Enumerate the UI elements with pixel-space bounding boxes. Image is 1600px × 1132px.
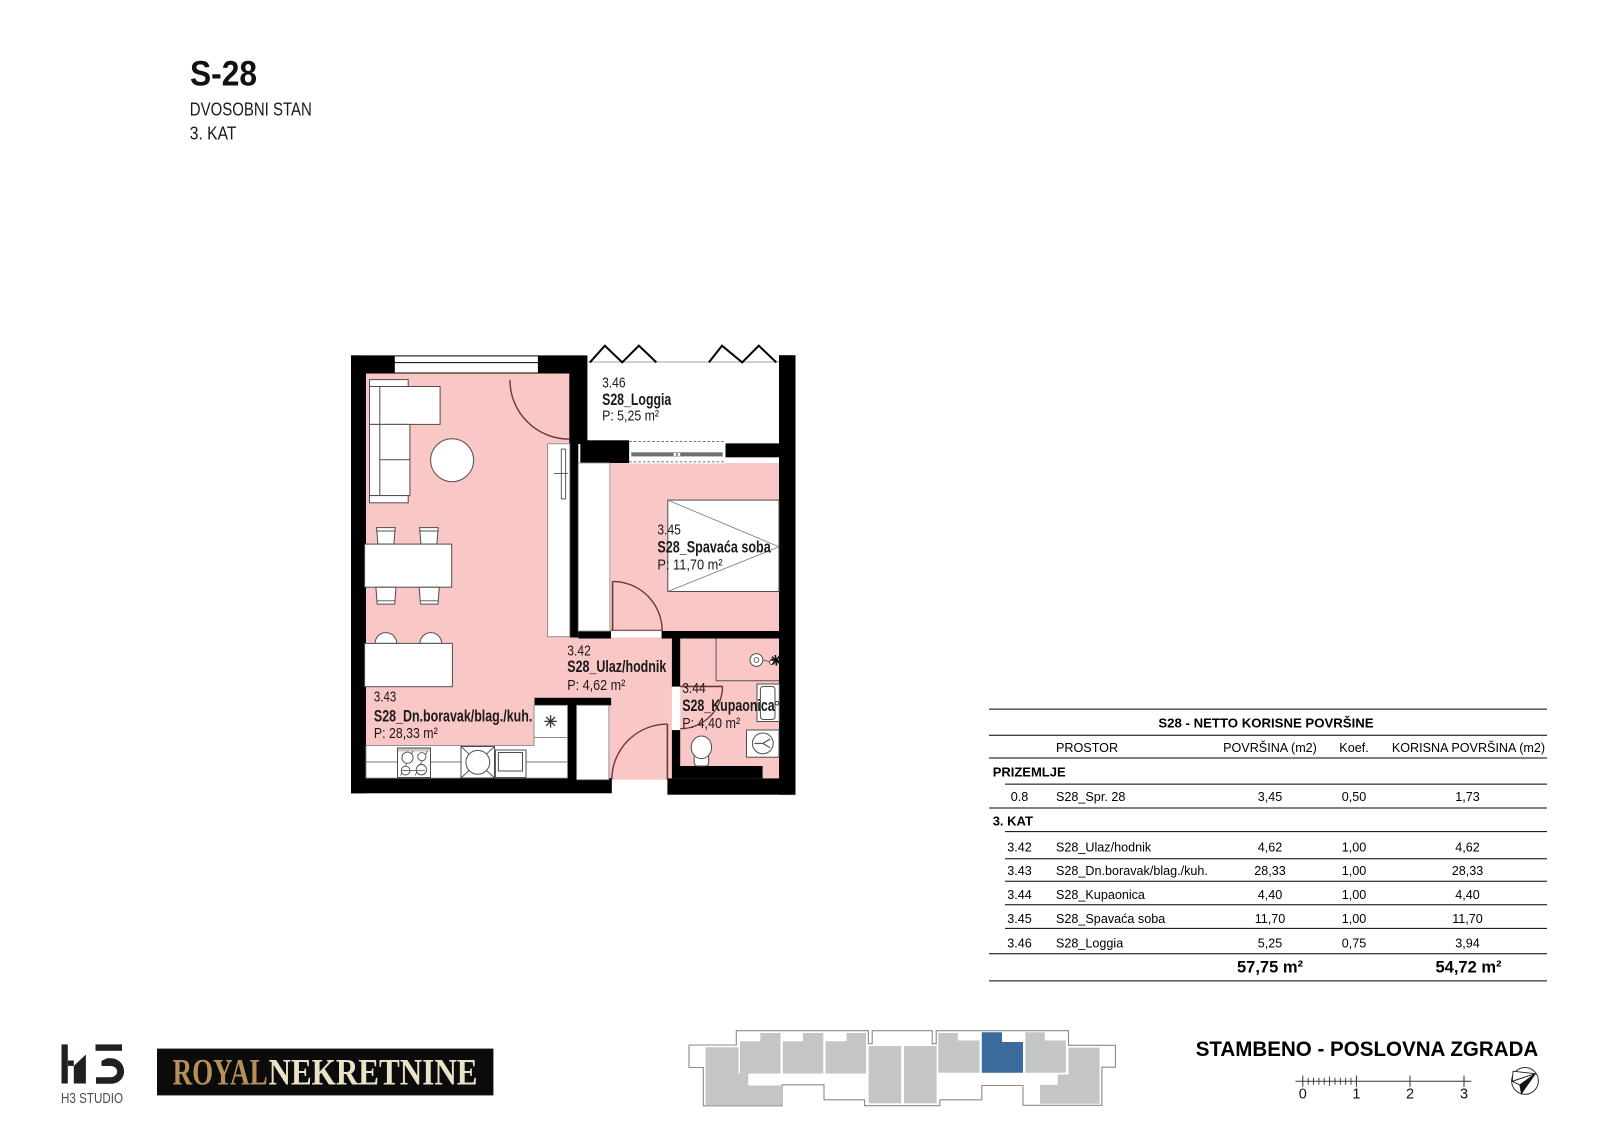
svg-text:POVRŠINA (m2): POVRŠINA (m2) [1223, 740, 1317, 755]
svg-text:3.44: 3.44 [1007, 888, 1032, 902]
svg-text:4,62: 4,62 [1258, 840, 1283, 854]
svg-text:S28_Spavaća soba: S28_Spavaća soba [1056, 912, 1165, 926]
svg-text:3.46: 3.46 [1007, 936, 1032, 950]
svg-text:P: 28,33 m²: P: 28,33 m² [374, 725, 438, 742]
svg-text:3,45: 3,45 [1258, 790, 1283, 804]
svg-text:3,94: 3,94 [1455, 936, 1480, 950]
svg-text:S28_Ulaz/hodnik: S28_Ulaz/hodnik [1056, 840, 1152, 854]
svg-text:P: 4,40 m²: P: 4,40 m² [682, 715, 740, 732]
svg-text:P: 5,25 m²: P: 5,25 m² [602, 408, 659, 425]
svg-text:S28_Dn.boravak/blag./kuh.: S28_Dn.boravak/blag./kuh. [1056, 864, 1208, 878]
svg-text:3. KAT: 3. KAT [190, 123, 237, 143]
svg-text:S28_Dn.boravak/blag./kuh.: S28_Dn.boravak/blag./kuh. [374, 707, 532, 726]
svg-text:57,75 m²: 57,75 m² [1237, 958, 1304, 976]
svg-text:0: 0 [1299, 1087, 1307, 1103]
svg-text:4,62: 4,62 [1455, 840, 1480, 854]
svg-text:4,40: 4,40 [1455, 888, 1480, 902]
svg-text:ROYAL: ROYAL [173, 1053, 268, 1094]
svg-text:3: 3 [1460, 1087, 1468, 1103]
svg-text:0.8: 0.8 [1011, 790, 1029, 804]
svg-text:3.42: 3.42 [1007, 840, 1032, 854]
svg-text:0,75: 0,75 [1342, 936, 1367, 950]
svg-text:PROSTOR: PROSTOR [1056, 741, 1118, 755]
svg-text:DVOSOBNI STAN: DVOSOBNI STAN [190, 100, 312, 120]
svg-text:S28_Ulaz/hodnik: S28_Ulaz/hodnik [567, 657, 666, 676]
svg-text:H3 STUDIO: H3 STUDIO [61, 1091, 123, 1107]
svg-text:5,25: 5,25 [1258, 936, 1283, 950]
svg-text:3.46: 3.46 [602, 374, 626, 391]
svg-text:S-28: S-28 [190, 55, 257, 94]
svg-text:KORISNA POVRŠINA (m2): KORISNA POVRŠINA (m2) [1392, 740, 1545, 755]
svg-text:P: 4,62 m²: P: 4,62 m² [567, 677, 625, 694]
svg-text:1,00: 1,00 [1342, 888, 1367, 902]
svg-text:STAMBENO - POSLOVNA ZGRADA: STAMBENO - POSLOVNA ZGRADA [1196, 1037, 1539, 1061]
svg-text:4,40: 4,40 [1258, 888, 1283, 902]
svg-text:S28_Kupaonica: S28_Kupaonica [1056, 888, 1145, 902]
svg-text:Koef.: Koef. [1339, 741, 1368, 755]
svg-text:1,73: 1,73 [1455, 790, 1480, 804]
svg-text:28,33: 28,33 [1452, 864, 1484, 878]
svg-text:3.45: 3.45 [1007, 912, 1032, 926]
svg-text:3.45: 3.45 [657, 522, 681, 539]
svg-text:3.43: 3.43 [1007, 864, 1032, 878]
svg-text:S28_Spr. 28: S28_Spr. 28 [1056, 790, 1125, 804]
svg-text:S28 - NETTO KORISNE POVRŠINE: S28 - NETTO KORISNE POVRŠINE [1158, 716, 1373, 731]
svg-text:1: 1 [1352, 1087, 1360, 1103]
svg-text:S28_Loggia: S28_Loggia [1056, 936, 1123, 950]
svg-text:28,33: 28,33 [1254, 864, 1286, 878]
svg-text:2: 2 [1406, 1087, 1414, 1103]
svg-text:S28_Kupaonica: S28_Kupaonica [682, 696, 775, 715]
svg-text:3. KAT: 3. KAT [993, 813, 1033, 828]
svg-text:11,70: 11,70 [1255, 912, 1286, 926]
svg-text:11,70: 11,70 [1452, 912, 1483, 926]
svg-text:54,72 m²: 54,72 m² [1435, 958, 1502, 976]
svg-text:3.44: 3.44 [682, 680, 706, 697]
svg-text:3.43: 3.43 [374, 689, 396, 706]
svg-text:P: 11,70 m²: P: 11,70 m² [657, 556, 722, 573]
svg-text:S28_Spavaća soba: S28_Spavaća soba [657, 538, 771, 557]
svg-text:S28_Loggia: S28_Loggia [602, 390, 672, 409]
svg-text:1,00: 1,00 [1342, 912, 1367, 926]
svg-text:PRIZEMLJE: PRIZEMLJE [993, 764, 1066, 779]
svg-text:1,00: 1,00 [1342, 840, 1367, 854]
svg-text:0,50: 0,50 [1342, 790, 1367, 804]
svg-text:1,00: 1,00 [1342, 864, 1367, 878]
svg-text:NEKRETNINE: NEKRETNINE [269, 1053, 478, 1094]
